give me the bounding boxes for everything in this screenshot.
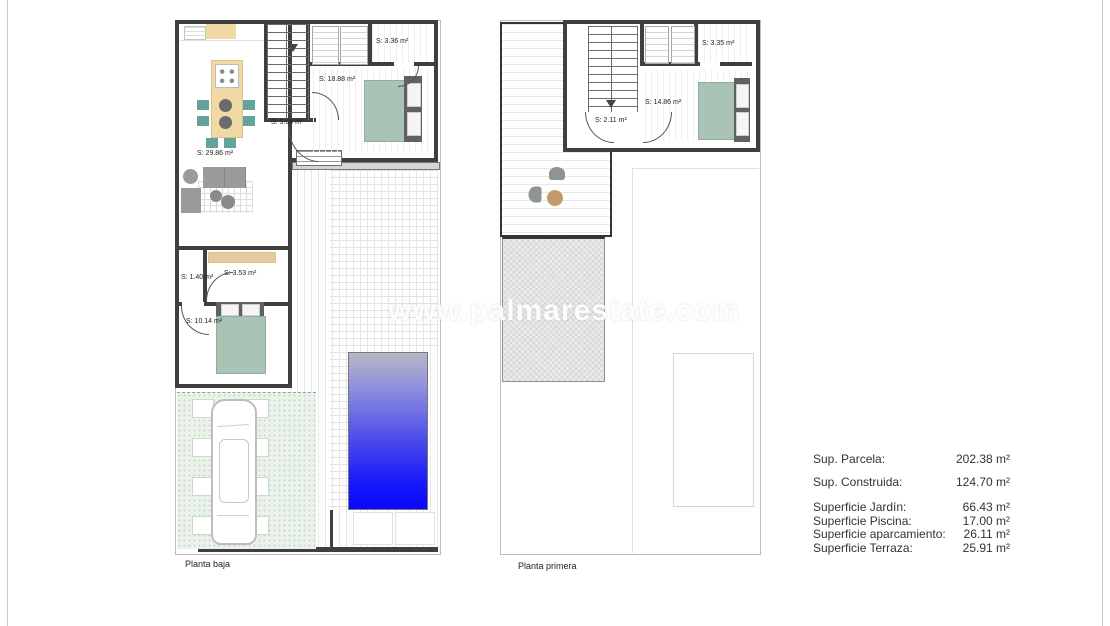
pool-tech-box <box>395 512 435 545</box>
room-label: S: 1.40 m² <box>181 274 213 282</box>
coffee-table <box>221 195 235 209</box>
terrace-chair <box>549 167 565 180</box>
bed <box>364 80 408 142</box>
area-label: Superficie Jardín: <box>813 500 906 514</box>
room-label: S: 5.64 m² <box>271 119 303 127</box>
sofa-cushion-divider <box>224 167 225 188</box>
terrace-chair <box>529 187 542 203</box>
area-row: Sup. Parcela: 202.38 m² <box>813 452 1010 466</box>
room-label: S: 3.35 m² <box>702 40 734 48</box>
pillow <box>221 304 239 316</box>
area-row: Superficie aparcamiento: 26.11 m² <box>813 527 1010 541</box>
area-value: 17.00 m² <box>963 514 1010 528</box>
bed <box>698 82 738 140</box>
pillow <box>242 304 260 316</box>
door-opening <box>700 62 720 66</box>
area-row: Superficie Piscina: 17.00 m² <box>813 514 1010 528</box>
wardrobe <box>645 26 669 64</box>
room-label: S: 2.11 m² <box>595 117 627 125</box>
area-value: 202.38 m² <box>956 452 1010 466</box>
bedroom-wall <box>640 24 644 66</box>
watermark: www.palmarestate.com <box>388 294 728 328</box>
wardrobe <box>671 26 695 64</box>
area-row: Sup. Construida: 124.70 m² <box>813 475 1010 489</box>
pillow <box>407 83 421 107</box>
room-label: S: 18.88 m² <box>319 76 355 84</box>
area-row: Superficie Terraza: 25.91 m² <box>813 541 1010 555</box>
dining-plate <box>219 116 232 129</box>
boundary-wall <box>330 510 333 550</box>
car-windshield <box>217 424 249 427</box>
car-rear-window <box>217 515 249 516</box>
car <box>211 399 257 545</box>
dining-chair <box>243 116 255 126</box>
armchair <box>181 188 201 213</box>
area-label: Superficie aparcamiento: <box>813 527 946 541</box>
pillow <box>736 84 749 108</box>
dining-chair <box>224 138 236 148</box>
kitchen-counter-wood <box>206 24 236 39</box>
bath-block-top-wall <box>179 246 288 250</box>
room-label: S: 3.53 m² <box>224 270 256 278</box>
dining-chair <box>197 100 209 110</box>
area-label: Sup. Parcela: <box>813 452 885 466</box>
area-row: Superficie Jardín: 66.43 m² <box>813 500 1010 514</box>
room-label: S: 3.36 m² <box>376 38 408 46</box>
stair-rail <box>286 24 287 120</box>
pillow <box>407 112 421 136</box>
wardrobe <box>312 26 339 65</box>
areas-panel: Sup. Parcela: 202.38 m² Sup. Construida:… <box>813 0 1010 626</box>
area-value: 66.43 m² <box>963 500 1010 514</box>
plant <box>183 169 198 184</box>
room-label: S: 10.14 m² <box>186 318 222 326</box>
room-label: S: 29.86 m² <box>197 150 233 158</box>
dining-chair <box>243 100 255 110</box>
staircase <box>267 24 309 120</box>
dining-chair <box>197 116 209 126</box>
deck-grid-strip <box>330 352 348 510</box>
dining-chair <box>206 138 218 148</box>
area-value: 25.91 m² <box>963 541 1010 555</box>
page-right-border <box>1102 0 1103 626</box>
kitchen-sink <box>184 26 206 40</box>
car-roof <box>219 439 249 503</box>
plan-title: Planta baja <box>185 559 230 569</box>
area-label: Sup. Construida: <box>813 475 902 489</box>
bed <box>216 316 266 374</box>
pool-tech-box <box>353 512 393 545</box>
dining-plate <box>219 99 232 112</box>
stair-direction-arrow <box>288 44 298 52</box>
swimming-pool <box>348 352 428 510</box>
pillow <box>736 112 749 136</box>
terrace-table <box>547 190 563 206</box>
area-label: Superficie Terraza: <box>813 541 913 555</box>
pool-ghost-outline <box>673 353 754 507</box>
wardrobe <box>340 26 368 65</box>
area-value: 26.11 m² <box>964 527 1010 541</box>
page-left-border <box>7 0 8 626</box>
floorplan-sheet: S: 29.86 m² S: 18.88 m² S: 3.36 m² S: 5.… <box>0 0 1110 626</box>
stove <box>215 64 239 88</box>
bathroom-counter <box>208 252 276 263</box>
area-label: Superficie Piscina: <box>813 514 912 528</box>
area-value: 124.70 m² <box>956 475 1010 489</box>
plan-title: Planta primera <box>518 561 577 571</box>
room-label: S: 14.86 m² <box>645 99 681 107</box>
stair-direction-arrow <box>606 100 616 108</box>
